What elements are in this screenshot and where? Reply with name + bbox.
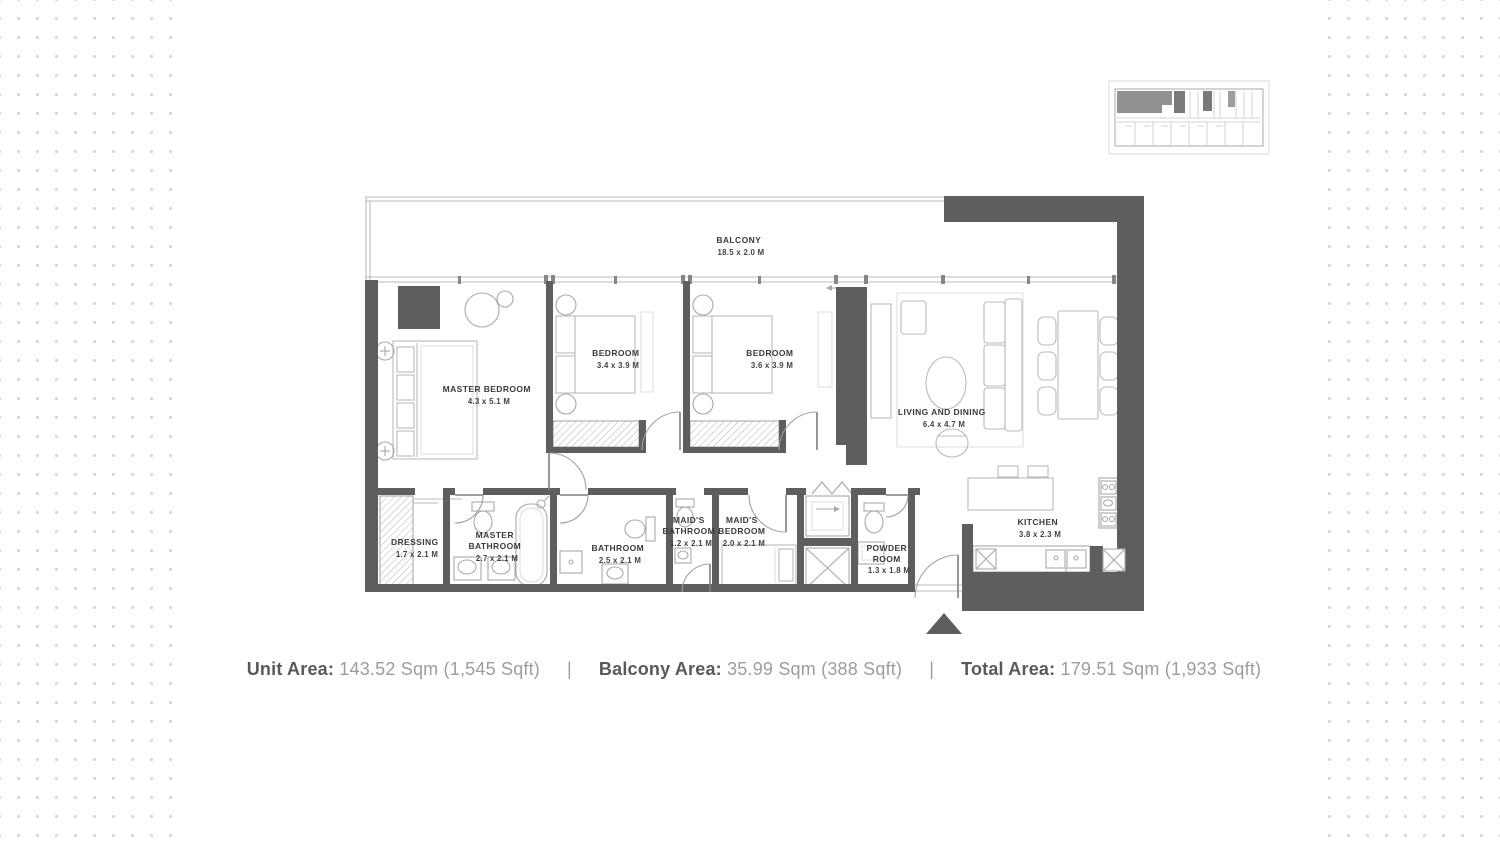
side-table-icon [901,301,926,334]
area-summary-bar: Unit Area: 143.52 Sqm (1,545 Sqft) | Bal… [181,654,1327,684]
cooktop-icon [1099,478,1118,528]
bedroom-2-furniture [690,295,832,447]
master-bedroom-furniture [376,291,513,460]
total-area: Total Area: 179.51 Sqm (1,933 Sqft) [961,659,1261,680]
living-dining-furniture [871,293,1118,457]
bifold-door-icon [812,482,852,494]
coffee-table-icon [926,357,966,409]
balcony-area: Balcony Area: 35.99 Sqm (388 Sqft) [599,659,902,680]
separator: | [929,659,934,680]
balcony-area-label: Balcony Area: [599,659,722,679]
stool-icon [1028,466,1048,477]
stool-icon [998,466,1018,477]
unit-area-label: Unit Area: [247,659,334,679]
key-plan [1108,80,1270,155]
nightstand-icon [693,394,713,414]
entrance-threshold [915,585,962,591]
laundry-shaft [806,482,852,588]
room-label-bathroom: BATHROOM 2.5 x 2.1 M [591,538,648,565]
room-label-kitchen: KITCHEN 3.8 x 2.3 M [1017,512,1062,539]
tv-console-icon [871,304,891,418]
total-area-value: 179.51 Sqm (1,933 Sqft) [1061,659,1262,679]
room-label-master-bedroom: MASTER BEDROOM 4.3 x 5.1 M [443,379,536,406]
kitchen-counter [973,546,1090,574]
armchair-icon [465,293,499,327]
nightstand-icon [693,295,713,315]
room-label-maids-bedroom: MAID'S BEDROOM 2.0 x 2.1 M [718,510,770,548]
key-plan-core-3 [1228,91,1235,107]
island-icon [968,478,1053,510]
nightstand-icon [556,295,576,315]
toilet-icon [472,502,494,511]
floor-plan-page: BALCONY 18.5 x 2.0 M MASTER BEDROOM 4.3 … [0,0,1500,842]
dining-chairs [1038,317,1118,415]
room-label-living-dining: LIVING AND DINING 6.4 x 4.7 M [898,402,990,429]
floor-plan: BALCONY 18.5 x 2.0 M MASTER BEDROOM 4.3 … [360,193,1144,635]
nightstand-icon [556,394,576,414]
room-label-balcony: BALCONY 18.5 x 2.0 M [716,230,765,257]
total-area-label: Total Area: [961,659,1055,679]
room-label-dressing: DRESSING 1.7 x 2.1 M [391,532,443,559]
toilet-icon [676,499,694,507]
bedroom-1-furniture [553,295,653,447]
accent-chair-icon [936,429,968,457]
unit-area-value: 143.52 Sqm (1,545 Sqft) [339,659,540,679]
sofa-icon [1005,299,1022,431]
window-mullions [458,275,1116,284]
key-plan-core-2 [1203,91,1212,111]
sink-icon [675,548,691,563]
balcony-area-value: 35.99 Sqm (388 Sqft) [727,659,902,679]
wardrobe-block [398,286,440,329]
wardrobe-icon [690,421,779,447]
dining-table-icon [1058,311,1098,419]
entry-arrow [926,613,962,634]
separator: | [567,659,572,680]
room-label-bedroom-2: BEDROOM 3.6 x 3.9 M [746,343,798,370]
maids-bedroom-furniture [722,545,796,585]
bed-icon [722,545,796,585]
room-label-master-bathroom: MASTER BATHROOM 2.7 x 2.1 M [468,525,525,563]
shower-tray-icon [560,551,582,573]
room-label-bedroom-1: BEDROOM 3.4 x 3.9 M [592,343,644,370]
room-label-powder-room: POWDER ROOM 1.3 x 1.8 M [866,538,911,575]
toilet-icon [864,503,884,511]
key-plan-core [1174,91,1185,113]
unit-area: Unit Area: 143.52 Sqm (1,545 Sqft) [247,659,540,680]
wardrobe-icon [553,421,639,447]
structural-column [836,287,867,445]
